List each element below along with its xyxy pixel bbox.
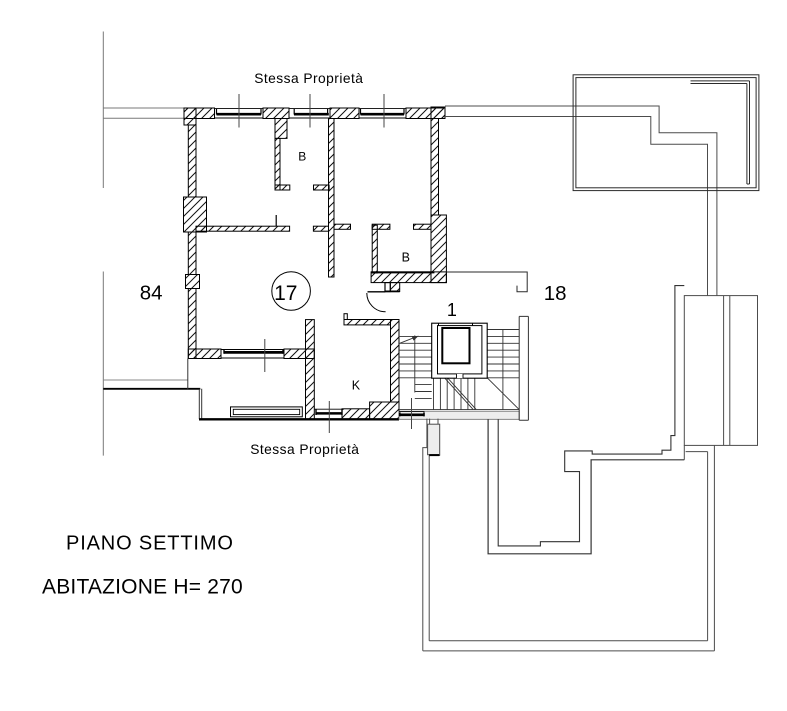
svg-text:18: 18 — [544, 282, 567, 305]
svg-text:K: K — [352, 379, 361, 393]
svg-text:B: B — [298, 150, 306, 164]
svg-text:ABITAZIONE H= 270: ABITAZIONE H= 270 — [42, 576, 243, 599]
svg-text:Stessa Proprietà: Stessa Proprietà — [254, 71, 363, 86]
svg-text:Stessa Proprietà: Stessa Proprietà — [250, 442, 359, 457]
svg-text:17: 17 — [274, 282, 297, 305]
svg-text:1: 1 — [447, 300, 457, 320]
svg-text:B: B — [402, 251, 410, 265]
svg-text:84: 84 — [140, 282, 163, 305]
svg-text:PIANO SETTIMO: PIANO SETTIMO — [66, 532, 234, 554]
